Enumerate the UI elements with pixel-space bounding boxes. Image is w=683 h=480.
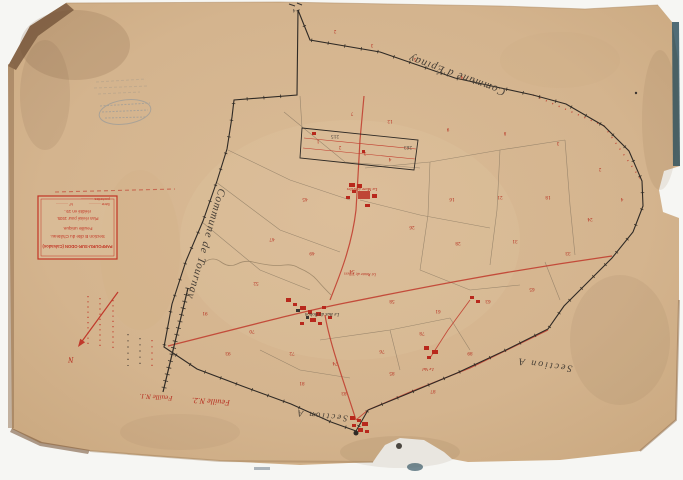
cartouche-field-serie: Série ............ xyxy=(89,202,110,206)
cartouche-revision: Plan révisé pour 1935. xyxy=(57,216,99,221)
binding-edge-teal xyxy=(672,22,680,166)
parcel-number: 3 xyxy=(556,141,559,146)
parcel-number: 85 xyxy=(389,371,395,376)
parcel-number: 215 xyxy=(331,134,339,139)
cartouche: PARFOURU-SUR-ODON (Calvados) Section B d… xyxy=(38,196,117,259)
parcel-number: 87 xyxy=(430,389,436,394)
cartouche-edition: réédité en 19.. xyxy=(64,209,91,214)
parcel-number: 4 xyxy=(620,197,623,202)
parcel-number: 1 xyxy=(316,139,319,144)
parcel-number: 4 xyxy=(388,157,391,162)
parcel-number: 72 xyxy=(289,351,295,356)
parcel-number: 52 xyxy=(253,281,259,286)
cartouche-field-pochettes: pochettes ............ xyxy=(81,197,110,201)
parcel-number: 54 xyxy=(349,269,355,274)
label-place-hamlet: Le Val xyxy=(422,367,435,372)
north-letter: N xyxy=(68,355,75,364)
parcel-number: 24 xyxy=(587,217,593,222)
parcel-number: 21 xyxy=(497,195,503,200)
parcel-number: 9 xyxy=(446,127,449,132)
cartouche-section: Section B dite du Château. xyxy=(50,234,105,239)
parcel-number: 58 xyxy=(389,299,395,304)
parcel-number: 70 xyxy=(249,329,255,334)
parcel-number: 3 xyxy=(370,43,373,48)
cartouche-sheet: Feuille unique. xyxy=(63,226,93,231)
parcel-number: 2 xyxy=(598,167,601,172)
parcel-number: 78 xyxy=(419,331,425,336)
parcel-number: 33 xyxy=(565,251,571,256)
parcel-number: 61 xyxy=(435,309,441,314)
parcel-number: 8 xyxy=(503,131,506,136)
parcel-number: 16 xyxy=(449,197,455,202)
parcel-number: 74 xyxy=(332,361,338,366)
parcel-number: 18 xyxy=(545,195,551,200)
parcel-number: 93 xyxy=(225,351,231,356)
parcel-number: 7 xyxy=(350,111,353,116)
parcel-number: 65 xyxy=(529,287,535,292)
parcel-number: 45 xyxy=(302,197,308,202)
parcel-number: 49 xyxy=(309,251,315,256)
parcel-number: 63 xyxy=(485,299,491,304)
parcel-number: 91 xyxy=(202,311,208,316)
cartouche-field-numero: N° ............ xyxy=(56,202,73,206)
parcel-number: 89 xyxy=(467,351,473,356)
cadastral-map-canvas: N PARFOURU-SUR-ODON (Calvados) Section B… xyxy=(0,0,683,480)
parcel-number: 26 xyxy=(409,225,415,230)
scanned-cadastral-map-page: N PARFOURU-SUR-ODON (Calvados) Section B… xyxy=(0,0,683,480)
parcel-number: 4 xyxy=(292,8,295,13)
parcel-number: 81 xyxy=(299,381,305,386)
cartouche-title: PARFOURU-SUR-ODON (Calvados) xyxy=(42,244,112,249)
parcel-number: 4 xyxy=(460,75,463,80)
label-place-village: Le Bas du Bohon xyxy=(304,311,340,316)
parcel-number: 5 xyxy=(413,57,416,62)
parcel-number: 3 xyxy=(363,151,366,156)
parcel-number: 263 xyxy=(404,145,412,150)
parcel-number: 28 xyxy=(455,241,461,246)
parcel-number: 2 xyxy=(333,29,336,34)
parcel-number: 83 xyxy=(341,391,347,396)
parcel-number: 2 xyxy=(338,145,341,150)
parcel-number: 31 xyxy=(512,239,518,244)
parcel-number: 76 xyxy=(379,349,385,354)
parcel-number: 12 xyxy=(387,119,393,124)
parcel-number: 47 xyxy=(269,237,275,242)
label-place-chateau: La Mare à Selles xyxy=(347,187,379,192)
